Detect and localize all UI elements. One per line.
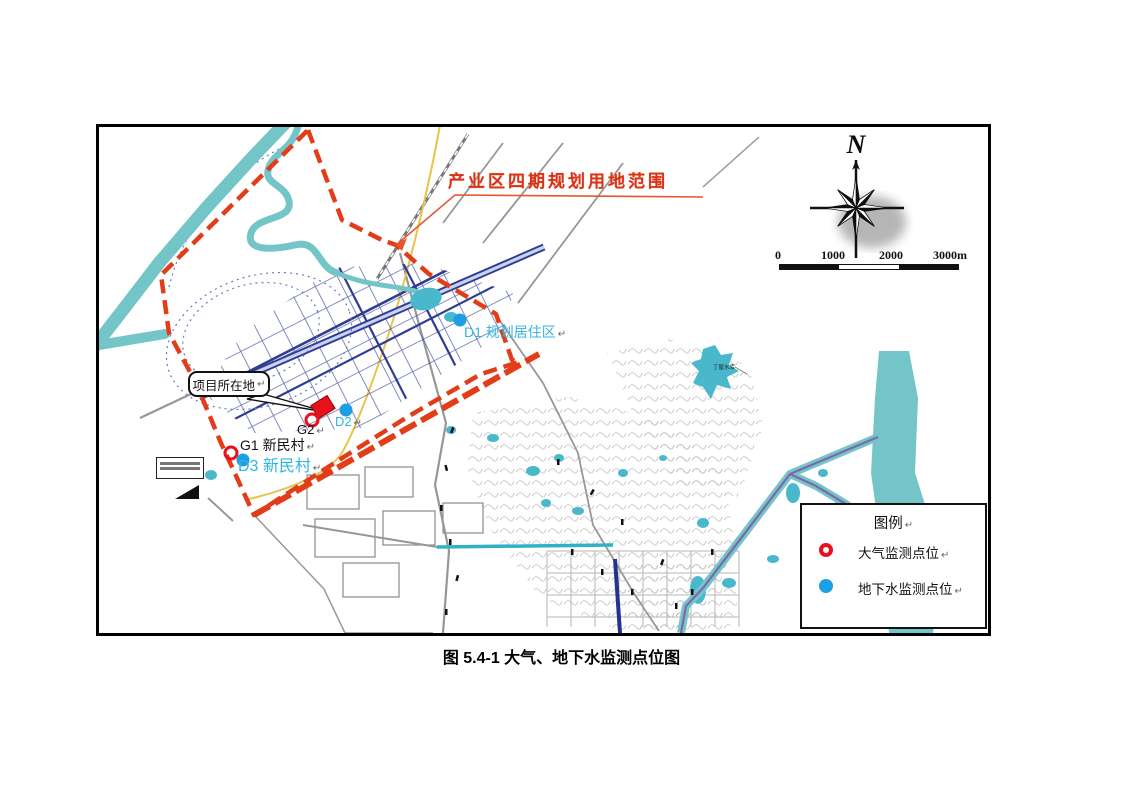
return-mark: ↵: [955, 586, 963, 597]
legend-title: 图例↵: [802, 512, 985, 533]
scale-segment: [899, 265, 958, 269]
legend-item-air: 大气监测点位↵: [802, 541, 985, 563]
small-annotation-box: [156, 457, 204, 479]
figure-caption: 图 5.4-1 大气、地下水监测点位图: [0, 644, 1123, 668]
legend-item-groundwater: 地下水监测点位↵: [802, 577, 985, 599]
return-mark: ↵: [905, 520, 913, 531]
legend-item-label: 大气监测点位↵: [858, 542, 949, 562]
teal-road: [437, 545, 613, 547]
boundary-label: 产业区四期规划用地范围: [448, 167, 708, 192]
boundary-label-leader: [396, 195, 703, 251]
scale-bar: 0 1000 2000 3000m: [773, 248, 983, 274]
document-page: 丁屋水库: [0, 0, 1123, 794]
north-label: N: [836, 130, 876, 160]
callout-text: 项目所在地: [193, 375, 256, 394]
reservoir-label: 丁屋水库: [713, 363, 736, 371]
scale-segment: [839, 265, 898, 269]
air-monitoring-point-icon: [819, 543, 833, 557]
scale-tick-3000: 3000m: [933, 248, 967, 263]
scale-tick-0: 0: [775, 248, 781, 263]
illegible-text-line: [160, 462, 200, 465]
scale-bar-segments: [779, 264, 959, 270]
return-mark: ↵: [941, 550, 949, 561]
project-site-callout: 项目所在地↵: [188, 371, 270, 397]
return-mark: ↵: [257, 379, 265, 390]
scale-tick-1000: 1000: [821, 248, 845, 263]
planned-zone-grid: [199, 224, 557, 433]
legend-item-label: 地下水监测点位↵: [858, 578, 963, 598]
groundwater-monitoring-point-icon: [819, 579, 833, 593]
scale-segment: [780, 265, 839, 269]
illegible-text-line: [160, 467, 200, 470]
scale-tick-2000: 2000: [879, 248, 903, 263]
legend: 图例↵ 大气监测点位↵ 地下水监测点位↵: [800, 503, 987, 629]
triangle-symbol: [175, 485, 199, 499]
